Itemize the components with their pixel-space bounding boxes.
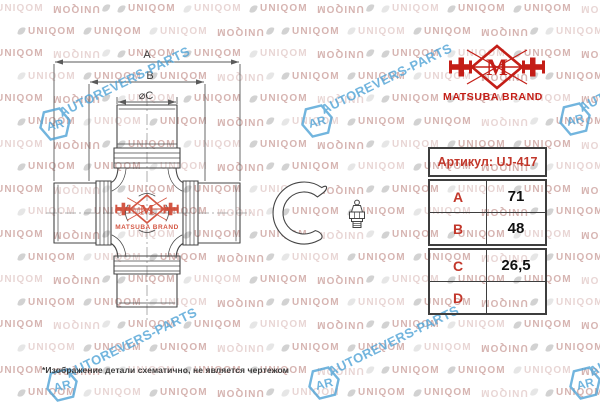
table-row: C 26,5 <box>430 250 545 281</box>
param-value: 71 <box>487 181 545 212</box>
catalog-card: UNIQOMUNIQOMUNIQOMUNIQOMUNIQOMUNIQOMUNIQ… <box>0 0 600 406</box>
param-value: 26,5 <box>487 250 545 281</box>
diagonal-watermark: ARAUTOREVERS-PARTS <box>568 365 600 406</box>
table-row: B 48 <box>430 212 545 244</box>
spec-rows-ab: A 71 B 48 <box>428 179 547 246</box>
diagonal-watermark: ARAUTOREVERS-PARTS <box>307 365 341 406</box>
table-row: A 71 <box>430 181 545 212</box>
param-label: D <box>430 282 487 313</box>
diagonal-watermark-text: AUTOREVERS-PARTS <box>586 302 600 379</box>
disclaimer-footnote: *Изображение детали схематично, не являе… <box>42 365 289 375</box>
diagonal-watermark-text: AUTOREVERS-PARTS <box>56 43 192 120</box>
table-row: D <box>430 281 545 313</box>
diagonal-watermark-text: AUTOREVERS-PARTS <box>576 38 600 115</box>
diagonal-watermark: ARAUTOREVERS-PARTS <box>558 101 592 142</box>
param-value <box>487 282 545 313</box>
article-header: Артикул: UJ-417 <box>428 147 547 177</box>
param-label: A <box>430 181 487 212</box>
param-value: 48 <box>487 213 545 244</box>
spec-table: Артикул: UJ-417 A 71 B 48 C 26,5 D <box>428 147 547 315</box>
article-number: Артикул: UJ-417 <box>438 155 538 169</box>
param-label: C <box>430 250 487 281</box>
spec-rows-cd: C 26,5 D <box>428 248 547 315</box>
diagonal-watermark: ARAUTOREVERS-PARTS <box>300 103 334 144</box>
diagonal-watermark: ARAUTOREVERS-PARTS <box>38 106 72 147</box>
diagonal-watermark-text: AUTOREVERS-PARTS <box>318 40 454 117</box>
param-label: B <box>430 213 487 244</box>
